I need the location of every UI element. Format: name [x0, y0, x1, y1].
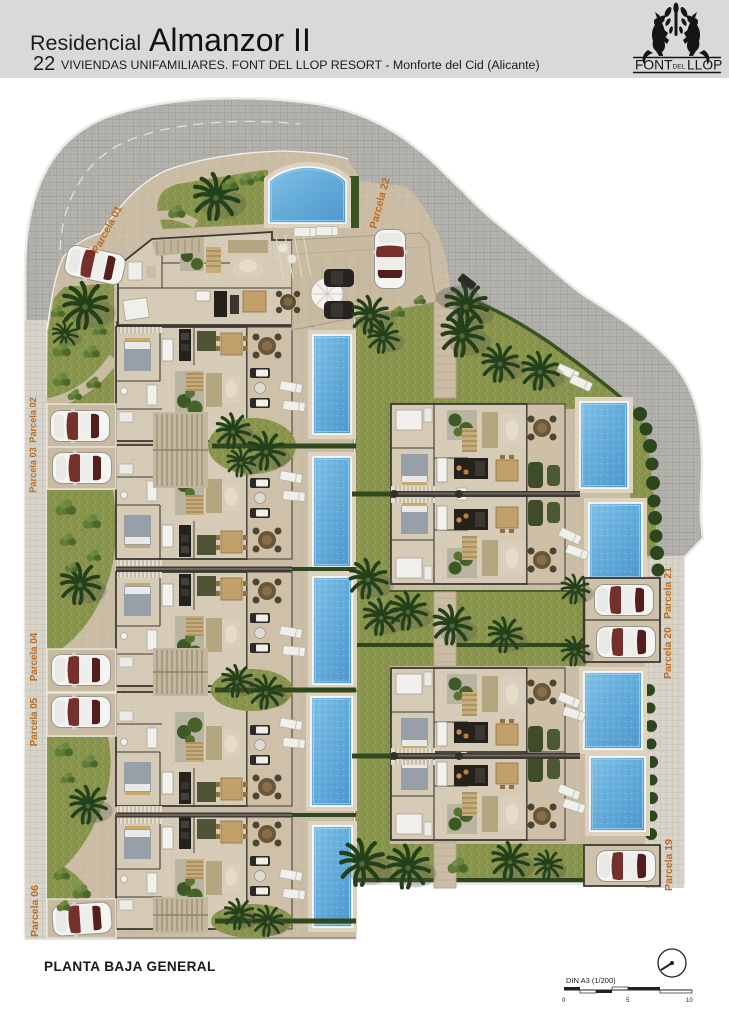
svg-text:Parcela 04: Parcela 04 — [29, 632, 40, 681]
svg-text:Almanzor II: Almanzor II — [149, 22, 311, 58]
svg-text:22: 22 — [33, 53, 55, 75]
svg-text:PLANTA BAJA GENERAL: PLANTA BAJA GENERAL — [44, 959, 216, 974]
svg-text:Parcela 21: Parcela 21 — [662, 567, 674, 619]
svg-text:LLOP: LLOP — [687, 58, 722, 73]
svg-text:Parcela 05: Parcela 05 — [29, 697, 40, 746]
svg-text:10: 10 — [686, 998, 693, 1004]
svg-text:Parcela 20: Parcela 20 — [662, 627, 674, 679]
svg-text:Parcela 03: Parcela 03 — [28, 447, 38, 492]
svg-text:FONT: FONT — [635, 58, 673, 73]
svg-text:0: 0 — [562, 998, 566, 1004]
svg-text:Parcela 02: Parcela 02 — [28, 397, 38, 442]
svg-text:VIVIENDAS UNIFAMILIARES. FONT: VIVIENDAS UNIFAMILIARES. FONT DEL LLOP R… — [61, 58, 540, 72]
svg-text:Parcela 06: Parcela 06 — [29, 885, 41, 937]
svg-text:DIN A3 (1/200): DIN A3 (1/200) — [566, 976, 616, 985]
svg-text:DEL: DEL — [673, 64, 686, 71]
svg-text:Residencial: Residencial — [30, 31, 141, 55]
svg-text:5: 5 — [626, 998, 630, 1004]
svg-text:Parcela 19: Parcela 19 — [663, 839, 675, 891]
